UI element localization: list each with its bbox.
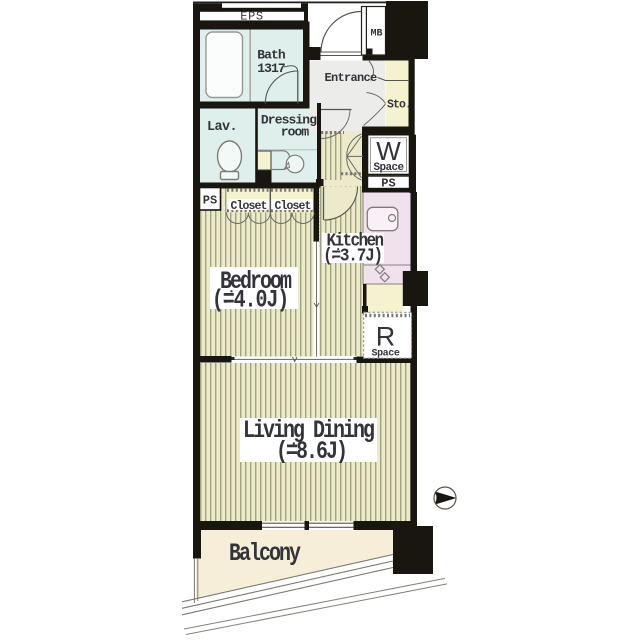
svg-text:(=8.6J): (=8.6J) — [276, 437, 346, 466]
svg-text:1317: 1317 — [257, 61, 285, 76]
svg-text:PS: PS — [203, 194, 217, 208]
svg-text:(=4.0J): (=4.0J) — [212, 286, 288, 315]
svg-text:Space: Space — [371, 349, 399, 360]
svg-text:Closet: Closet — [274, 200, 310, 213]
svg-text:Sto.: Sto. — [387, 99, 411, 112]
svg-text:(=3.7J): (=3.7J) — [323, 245, 382, 267]
svg-text:Space: Space — [373, 162, 404, 174]
svg-text:Lav.: Lav. — [207, 120, 237, 135]
svg-text:PS: PS — [381, 177, 395, 191]
svg-text:Balcony: Balcony — [229, 539, 301, 568]
svg-text:MB: MB — [370, 29, 382, 40]
svg-text:Entrance: Entrance — [324, 71, 377, 85]
svg-text:R: R — [376, 322, 396, 352]
svg-text:EPS: EPS — [240, 9, 263, 23]
svg-text:room: room — [281, 125, 310, 140]
svg-text:Closet: Closet — [230, 200, 266, 213]
